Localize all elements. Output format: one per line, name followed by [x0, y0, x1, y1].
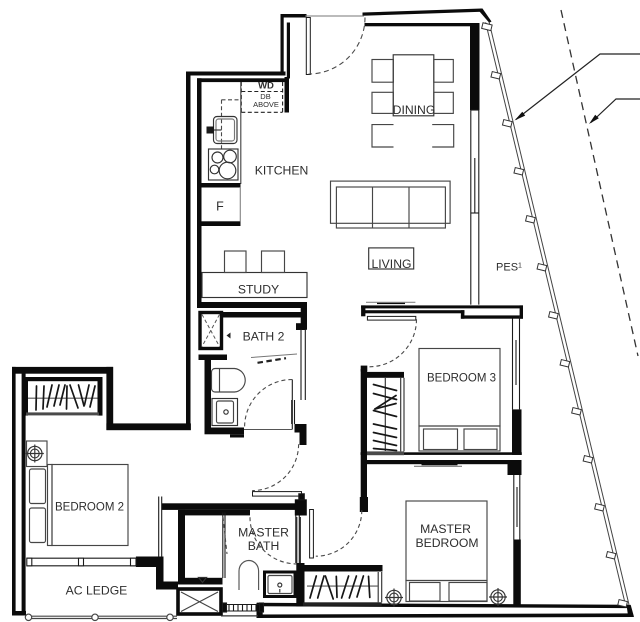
svg-text:BATH 2: BATH 2: [243, 330, 285, 344]
svg-text:F: F: [216, 200, 224, 214]
svg-text:ABOVE: ABOVE: [253, 100, 279, 109]
svg-text:AC LEDGE: AC LEDGE: [66, 584, 128, 598]
svg-text:STUDY: STUDY: [238, 283, 279, 297]
svg-text:BEDROOM 2: BEDROOM 2: [55, 502, 124, 514]
svg-text:BEDROOM: BEDROOM: [416, 536, 479, 550]
svg-text:LIVING: LIVING: [372, 257, 412, 271]
svg-text:MASTER: MASTER: [238, 526, 289, 540]
svg-text:DINING: DINING: [393, 103, 436, 117]
svg-text:KITCHEN: KITCHEN: [255, 164, 309, 178]
svg-text:MASTER: MASTER: [420, 522, 471, 536]
svg-text:BEDROOM 3: BEDROOM 3: [427, 373, 496, 385]
svg-text:BATH: BATH: [248, 539, 280, 553]
svg-text:WD: WD: [258, 81, 274, 92]
